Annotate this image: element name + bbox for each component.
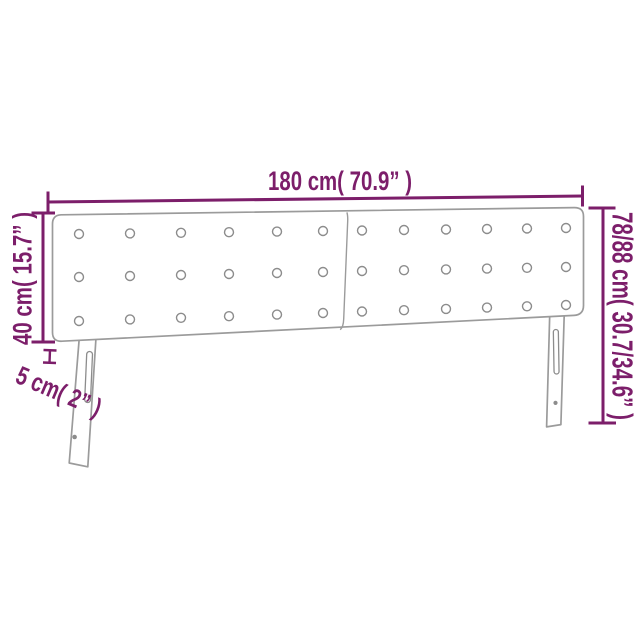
tufting-button <box>126 272 135 281</box>
tufting-button <box>177 271 186 280</box>
tufting-button <box>483 303 492 312</box>
tufting-button <box>177 313 186 322</box>
tufting-button <box>225 312 234 321</box>
tufting-button <box>523 302 532 311</box>
tufting-button <box>273 269 282 278</box>
headboard-dimension-diagram: 180 cm( 70.9” ) 40 cm( 15.7” ) 5 cm( 2” … <box>0 0 640 640</box>
tufting-button <box>358 267 367 276</box>
tufting-button <box>483 225 492 234</box>
total-height-label: 78/88 cm( 30.7/34.6” ) <box>606 212 638 420</box>
tufting-button <box>358 226 367 235</box>
tufting-button <box>273 227 282 236</box>
tufting-button <box>400 306 409 315</box>
depth-dimension-marker <box>43 350 57 363</box>
diagram-canvas: 180 cm( 70.9” ) 40 cm( 15.7” ) 5 cm( 2” … <box>0 0 640 640</box>
tufting-button <box>319 268 328 277</box>
tufting-button <box>358 307 367 316</box>
tufting-button <box>126 229 135 238</box>
tufting-button <box>562 301 571 310</box>
tufting-button <box>177 228 186 237</box>
tufting-button <box>523 263 532 272</box>
width-label: 180 cm( 70.9” ) <box>268 166 412 196</box>
tufting-button <box>562 224 571 233</box>
tufting-button <box>442 304 451 313</box>
tufting-button <box>225 270 234 279</box>
right-leg-slot <box>553 329 559 374</box>
right-leg-hole <box>553 401 557 405</box>
tufting-button <box>442 265 451 274</box>
tufting-button <box>523 224 532 233</box>
tufting-button <box>400 266 409 275</box>
tufting-button <box>483 264 492 273</box>
tufting-button <box>75 230 84 239</box>
tufting-button <box>400 226 409 235</box>
tufting-button <box>225 228 234 237</box>
tufting-button <box>273 310 282 319</box>
tufting-button <box>442 225 451 234</box>
panel-height-label: 40 cm( 15.7” ) <box>8 212 38 345</box>
tufting-button <box>126 315 135 324</box>
tufting-button <box>319 309 328 318</box>
left-leg-hole <box>72 435 77 440</box>
tufting-button <box>75 317 84 326</box>
tufting-button <box>319 227 328 236</box>
tufting-button <box>562 263 571 272</box>
tufting-button <box>75 273 84 282</box>
